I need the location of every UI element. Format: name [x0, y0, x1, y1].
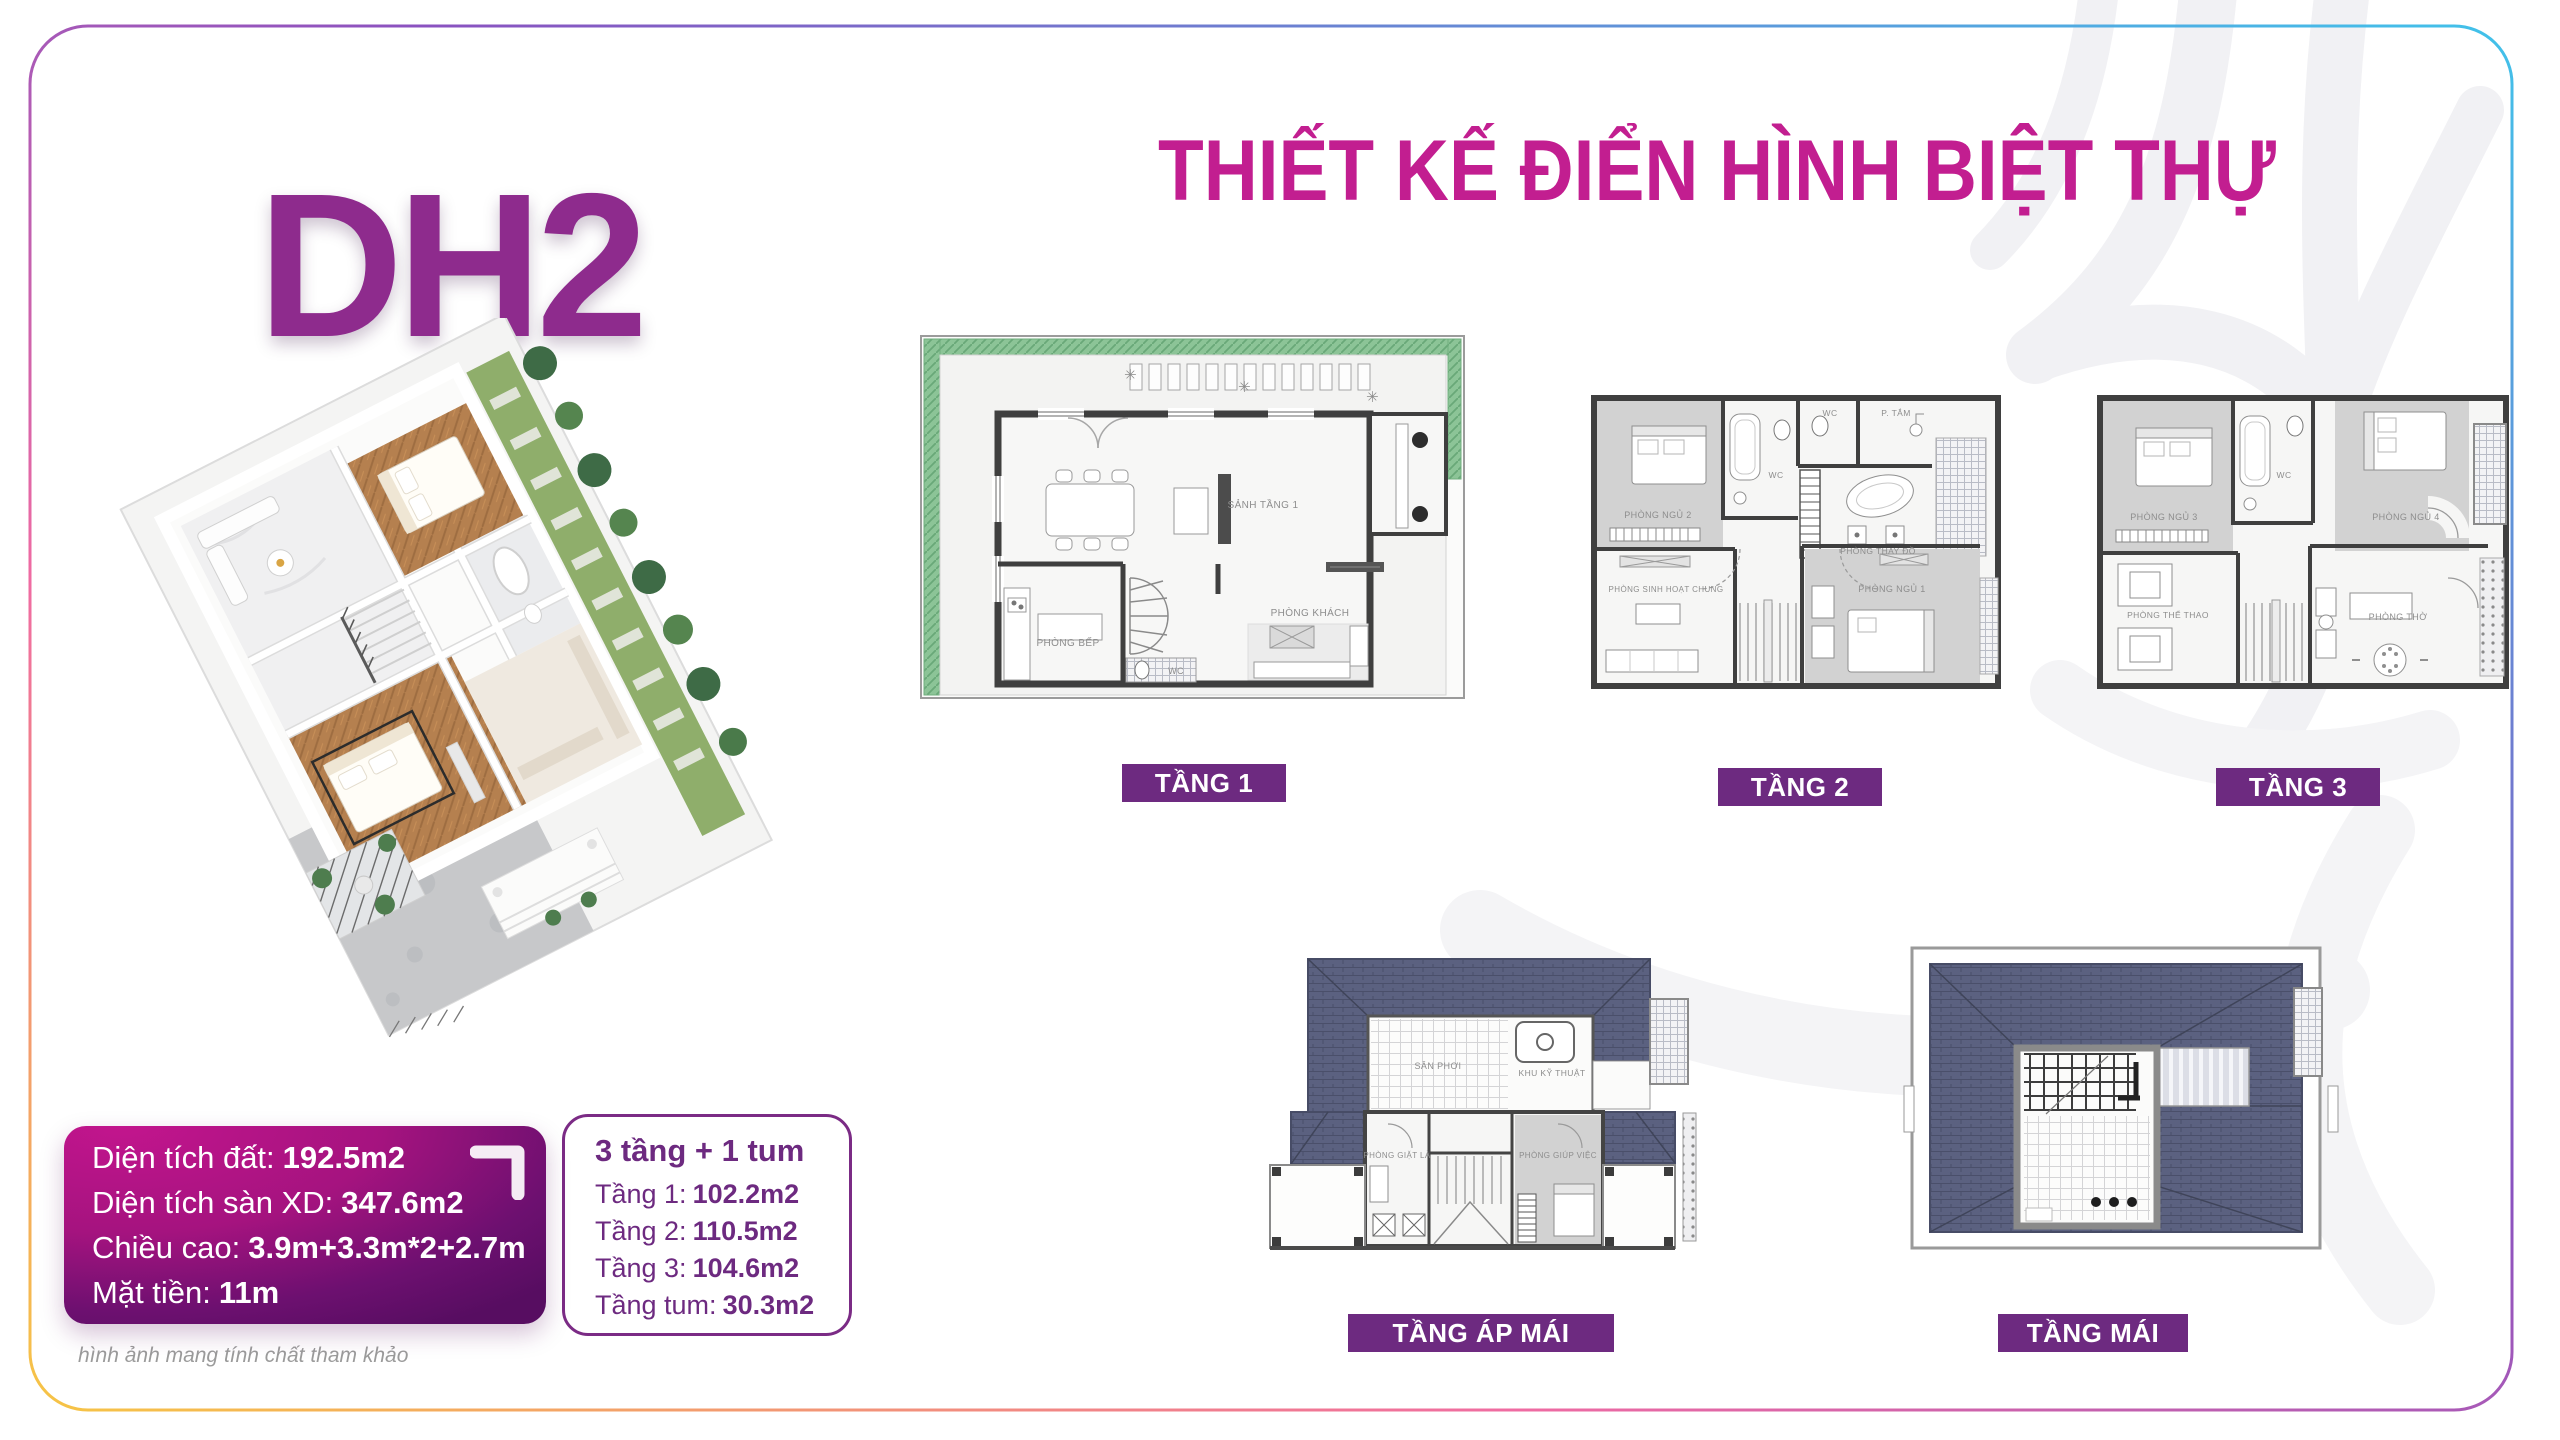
floor-label-tang-mai: TẦNG MÁI	[1998, 1314, 2188, 1352]
floor-label-tang-1: TẦNG 1	[1122, 764, 1286, 802]
floor-label-text: TẦNG ÁP MÁI	[1393, 1318, 1570, 1349]
room-label: WC	[1823, 408, 1838, 418]
room-label: PHÒNG KHÁCH	[1271, 606, 1350, 619]
page-title: THIẾT KẾ ĐIỂN HÌNH BIỆT THỰ	[1158, 122, 2324, 221]
floors-summary-box: 3 tầng + 1 tum Tầng 1:102.2m2 Tầng 2:110…	[562, 1114, 852, 1336]
spec-row: Diện tích sàn XD:347.6m2	[92, 1185, 518, 1221]
room-label: WC	[2277, 470, 2292, 480]
room-label: PHÒNG THỂ THAO	[2127, 609, 2209, 620]
room-label: P. TẮM	[1881, 408, 1911, 418]
floor-label-text: TẦNG 1	[1155, 768, 1253, 799]
floor-area-label: Tầng 2:	[595, 1216, 687, 1246]
floors-summary-title: 3 tầng + 1 tum	[595, 1133, 829, 1169]
room-label: PHÒNG GIÚP VIỆC	[1519, 1151, 1597, 1160]
floor-area-label: Tầng 1:	[595, 1179, 687, 1209]
room-label: PHÒNG NGỦ 1	[1858, 583, 1925, 594]
spec-label: Diện tích sàn XD:	[92, 1185, 333, 1220]
floor-label-text: TẦNG MÁI	[2027, 1318, 2160, 1349]
spec-box: Diện tích đất:192.5m2 Diện tích sàn XD:3…	[64, 1126, 546, 1324]
room-label: PHÒNG SINH HOẠT CHUNG	[1609, 585, 1724, 594]
spec-value: 347.6m2	[341, 1185, 463, 1220]
svg-text:✳: ✳	[1366, 389, 1379, 406]
villa-3d-render	[100, 318, 860, 1098]
floors-summary-row: Tầng tum:30.3m2	[595, 1290, 829, 1321]
room-label: WC	[1168, 666, 1184, 676]
spec-value: 192.5m2	[283, 1140, 405, 1175]
floor-label-tang-ap-mai: TẦNG ÁP MÁI	[1348, 1314, 1614, 1352]
room-label: PHÒNG THAY ĐỒ	[1840, 545, 1916, 556]
brochure-page: DH2 THIẾT KẾ ĐIỂN HÌNH BIỆT THỰ	[0, 0, 2560, 1440]
spec-row: Diện tích đất:192.5m2	[92, 1140, 518, 1176]
spec-label: Diện tích đất:	[92, 1140, 275, 1175]
spec-row: Chiều cao:3.9m+3.3m*2+2.7m	[92, 1230, 518, 1266]
floor-area-value: 104.6m2	[693, 1253, 800, 1283]
disclaimer-note: hình ảnh mang tính chất tham khảo	[78, 1344, 408, 1368]
spec-label: Mặt tiền:	[92, 1275, 211, 1310]
room-label: PHÒNG NGỦ 4	[2372, 511, 2439, 522]
svg-text:✳: ✳	[1238, 379, 1251, 396]
floors-summary-row: Tầng 2:110.5m2	[595, 1216, 829, 1247]
spec-value: 11m	[219, 1275, 279, 1310]
room-label: WC	[1769, 470, 1784, 480]
floor-label-tang-3: TẦNG 3	[2216, 768, 2380, 806]
floor-label-tang-2: TẦNG 2	[1718, 768, 1882, 806]
floor-area-label: Tầng tum:	[595, 1290, 717, 1320]
floors-summary-row: Tầng 3:104.6m2	[595, 1253, 829, 1284]
floor-plan-tang-1: ✳ ✳ ✳	[918, 326, 1470, 706]
spec-label: Chiều cao:	[92, 1230, 240, 1265]
floor-plan-tang-2: PHÒNG NGỦ 2 WC WC P. TẮM PHÒNG THAY ĐỒ P…	[1580, 378, 2014, 702]
floor-label-text: TẦNG 2	[1751, 772, 1849, 803]
spec-value: 3.9m+3.3m*2+2.7m	[248, 1230, 526, 1265]
floor-area-label: Tầng 3:	[595, 1253, 687, 1283]
room-label: PHÒNG BẾP	[1036, 636, 1099, 649]
room-label: PHÒNG NGỦ 3	[2130, 511, 2197, 522]
room-label: KHU KỸ THUẬT	[1519, 1068, 1586, 1078]
room-label: PHÒNG GIẶT LÀ	[1363, 1151, 1431, 1160]
floor-area-value: 110.5m2	[693, 1216, 798, 1246]
svg-text:✳: ✳	[1124, 367, 1137, 384]
spec-row: Mặt tiền:11m	[92, 1275, 518, 1311]
floor-area-value: 102.2m2	[693, 1179, 800, 1209]
room-label: SẢNH TẦNG 1	[1228, 498, 1299, 511]
corner-bracket-icon	[470, 1142, 528, 1200]
floors-summary-row: Tầng 1:102.2m2	[595, 1179, 829, 1210]
floor-label-text: TẦNG 3	[2249, 772, 2347, 803]
floor-area-value: 30.3m2	[723, 1290, 815, 1320]
floor-plan-tang-ap-mai: SÂN PHƠI KHU KỸ THUẬT PHÒNG GIẶT LÀ PHÒN…	[1258, 944, 1706, 1266]
floor-plan-tang-3: PHÒNG NGỦ 3 WC PHÒNG NGỦ 4 PHÒNG THỂ THA…	[2088, 378, 2524, 702]
floor-plan-tang-mai	[1896, 936, 2346, 1266]
room-label: SÂN PHƠI	[1415, 1061, 1462, 1071]
room-label: PHÒNG THỜ	[2369, 612, 2428, 622]
room-label: PHÒNG NGỦ 2	[1624, 509, 1691, 520]
